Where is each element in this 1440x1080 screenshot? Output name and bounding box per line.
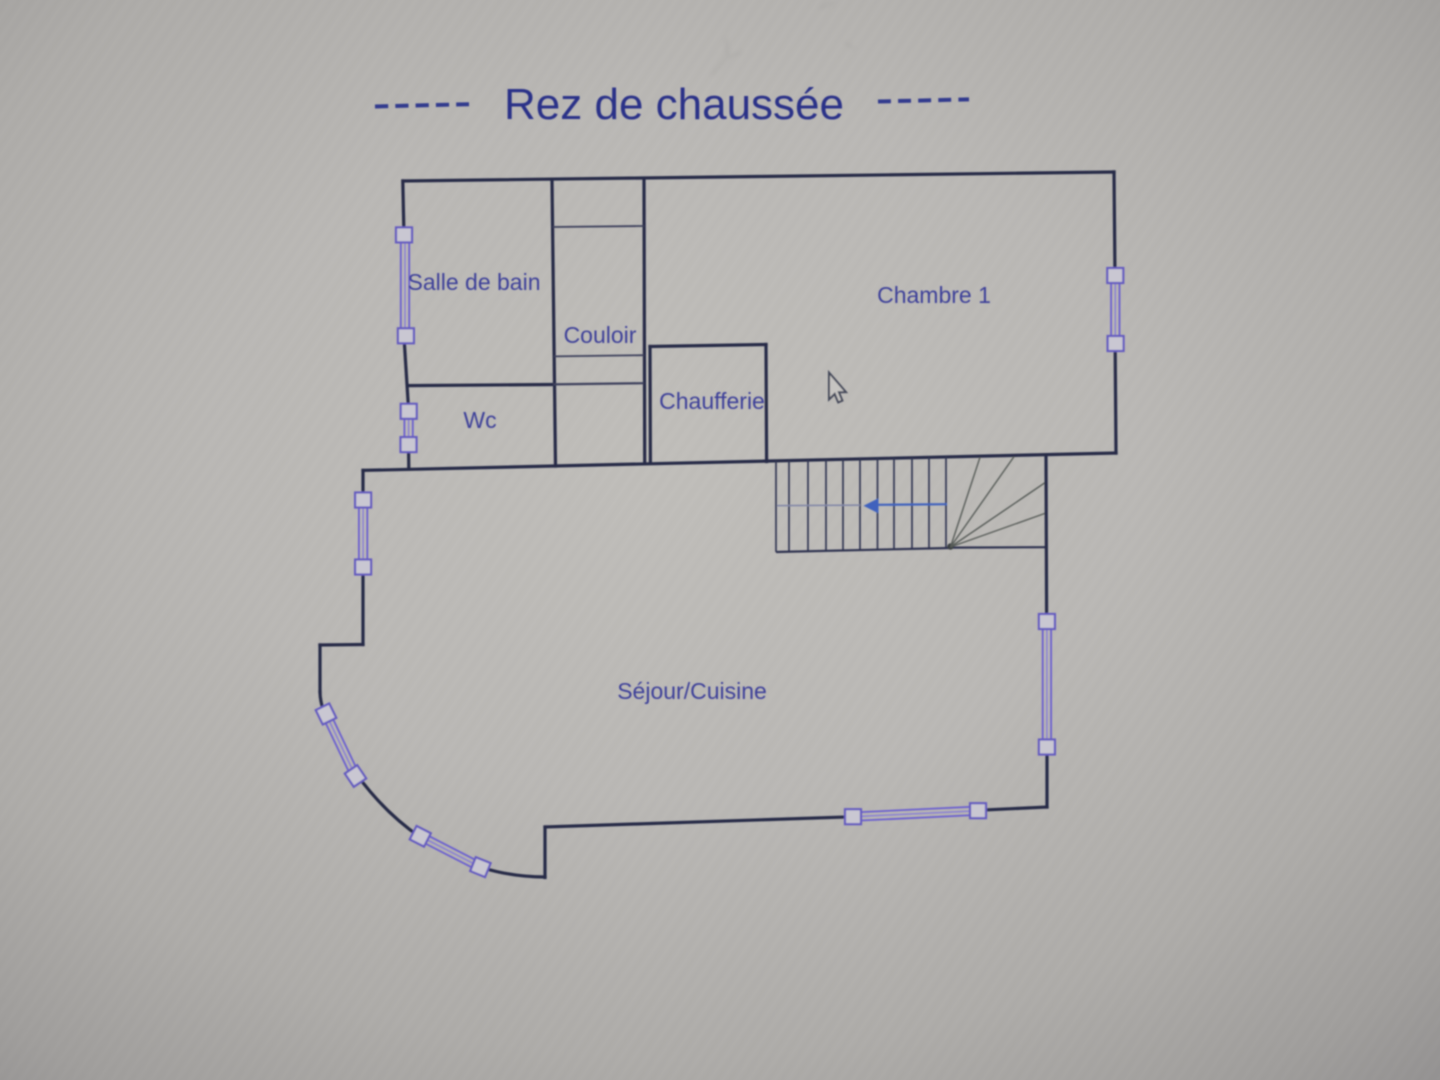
svg-text:Chambre 1: Chambre 1 [877, 282, 991, 308]
svg-text:Séjour/Cuisine: Séjour/Cuisine [617, 678, 767, 704]
svg-text:Wc: Wc [463, 407, 496, 433]
svg-text:Chaufferie: Chaufferie [659, 388, 765, 414]
svg-text:Rez de chaussée: Rez de chaussée [504, 80, 844, 129]
svg-text:Couloir: Couloir [564, 322, 637, 348]
svg-text:Salle de bain: Salle de bain [408, 269, 541, 295]
